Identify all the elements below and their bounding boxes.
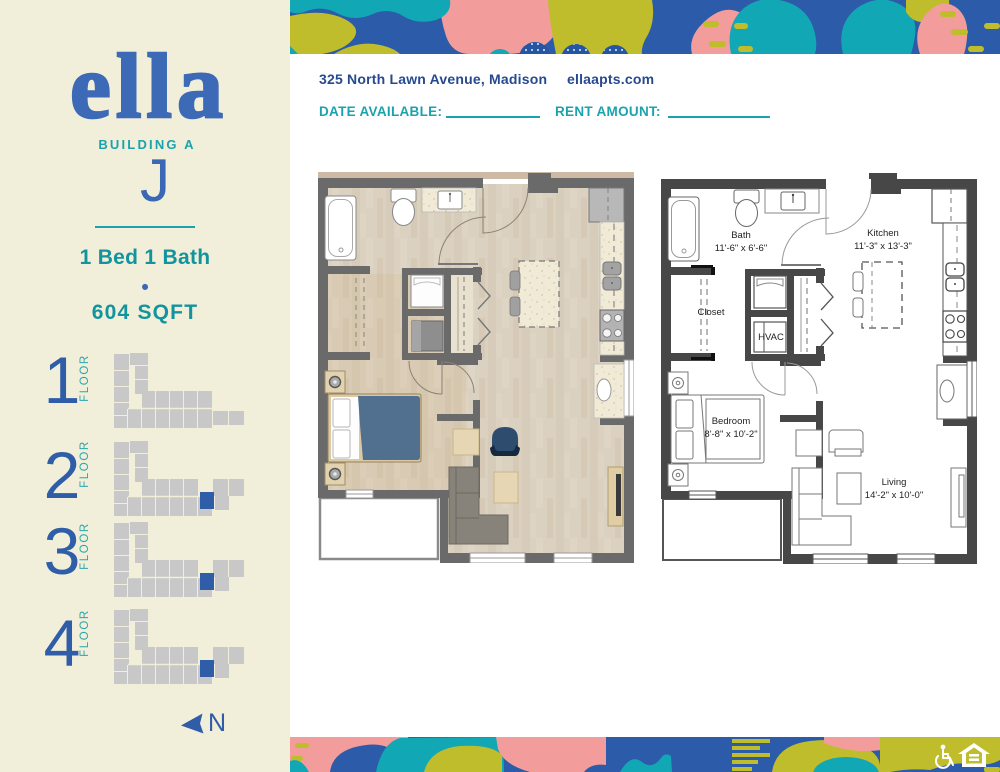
svg-text:Closet: Closet (698, 307, 725, 318)
svg-text:Bedroom: Bedroom (712, 416, 751, 427)
svg-text:14'-2" x 10'-0": 14'-2" x 10'-0" (865, 490, 923, 501)
svg-text:Kitchen: Kitchen (867, 228, 899, 239)
svg-text:11'-6" x 6'-6": 11'-6" x 6'-6" (715, 243, 767, 254)
svg-text:11'-3" x 13'-3": 11'-3" x 13'-3" (854, 241, 912, 252)
svg-text:Bath: Bath (731, 230, 751, 241)
svg-text:8'-8" x 10'-2": 8'-8" x 10'-2" (704, 429, 757, 440)
svg-text:HVAC: HVAC (758, 332, 784, 343)
svg-text:Living: Living (882, 477, 907, 488)
